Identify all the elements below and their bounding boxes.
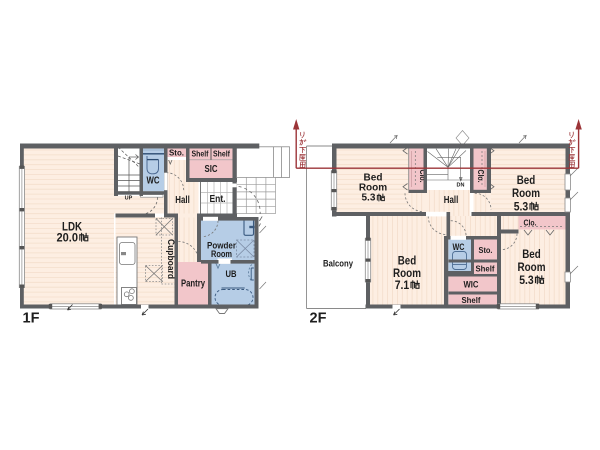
svg-text:Room: Room — [518, 262, 546, 274]
svg-text:5.3: 5.3 — [362, 193, 376, 204]
svg-text:DN: DN — [457, 183, 465, 189]
svg-text:5.3: 5.3 — [514, 202, 529, 214]
svg-text:2F: 2F — [310, 311, 327, 327]
svg-text:1F: 1F — [23, 311, 40, 327]
svg-text:Sto.: Sto. — [169, 148, 184, 158]
svg-text:UB: UB — [226, 269, 237, 280]
svg-text:Bed: Bed — [517, 175, 536, 187]
svg-text:Bed: Bed — [398, 256, 417, 268]
svg-text:Room: Room — [393, 268, 421, 280]
svg-text:SIC: SIC — [205, 164, 218, 175]
svg-text:Sto.: Sto. — [479, 245, 493, 255]
svg-text:Shelf: Shelf — [476, 264, 495, 274]
svg-text:WC: WC — [453, 242, 465, 252]
svg-text:5.3: 5.3 — [519, 275, 534, 287]
svg-text:Clo.: Clo. — [476, 170, 486, 183]
svg-text:20.0: 20.0 — [57, 233, 79, 245]
svg-text:Shelf: Shelf — [213, 150, 230, 159]
svg-text:Room: Room — [512, 188, 540, 200]
svg-text:WC: WC — [147, 176, 160, 187]
svg-text:Hall: Hall — [444, 194, 459, 206]
svg-text:Pantry: Pantry — [181, 279, 205, 290]
svg-text:Shelf: Shelf — [462, 295, 481, 305]
svg-text:Bed: Bed — [522, 249, 541, 261]
svg-text:Shelf: Shelf — [192, 150, 209, 159]
svg-text:7.1: 7.1 — [395, 280, 410, 292]
svg-text:WIC: WIC — [464, 280, 479, 291]
svg-text:UP: UP — [125, 196, 133, 202]
svg-text:Room: Room — [211, 249, 232, 259]
svg-text:Ent.: Ent. — [210, 194, 226, 205]
svg-text:Clo.: Clo. — [524, 218, 537, 228]
svg-text:Hall: Hall — [175, 194, 190, 206]
svg-text:Balcony: Balcony — [323, 259, 353, 269]
